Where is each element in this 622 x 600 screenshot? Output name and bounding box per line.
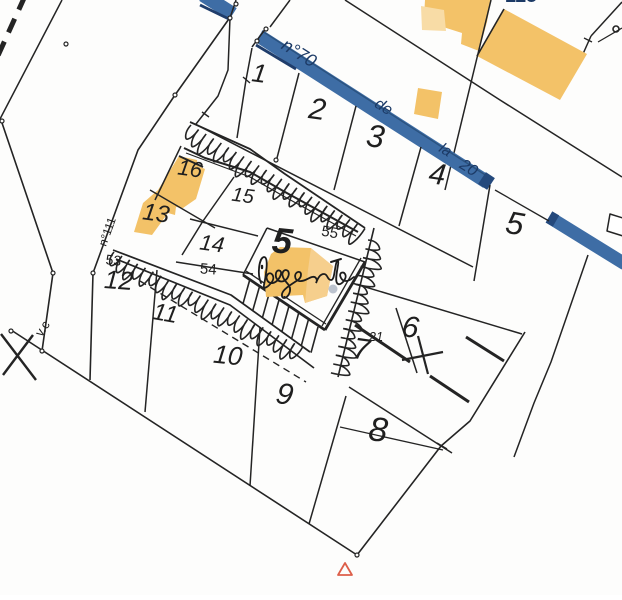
svg-text:21: 21: [368, 329, 383, 344]
svg-text:115: 115: [505, 0, 537, 7]
svg-text:16: 16: [176, 154, 204, 182]
svg-text:11: 11: [151, 298, 180, 329]
svg-text:13: 13: [141, 198, 172, 229]
svg-text:54: 54: [199, 260, 217, 278]
svg-text:12: 12: [103, 264, 134, 296]
svg-text:10: 10: [212, 339, 244, 372]
svg-text:14: 14: [198, 229, 226, 257]
svg-text:15: 15: [230, 184, 256, 209]
svg-text:8: 8: [367, 410, 390, 450]
svg-text:55: 55: [320, 223, 339, 243]
